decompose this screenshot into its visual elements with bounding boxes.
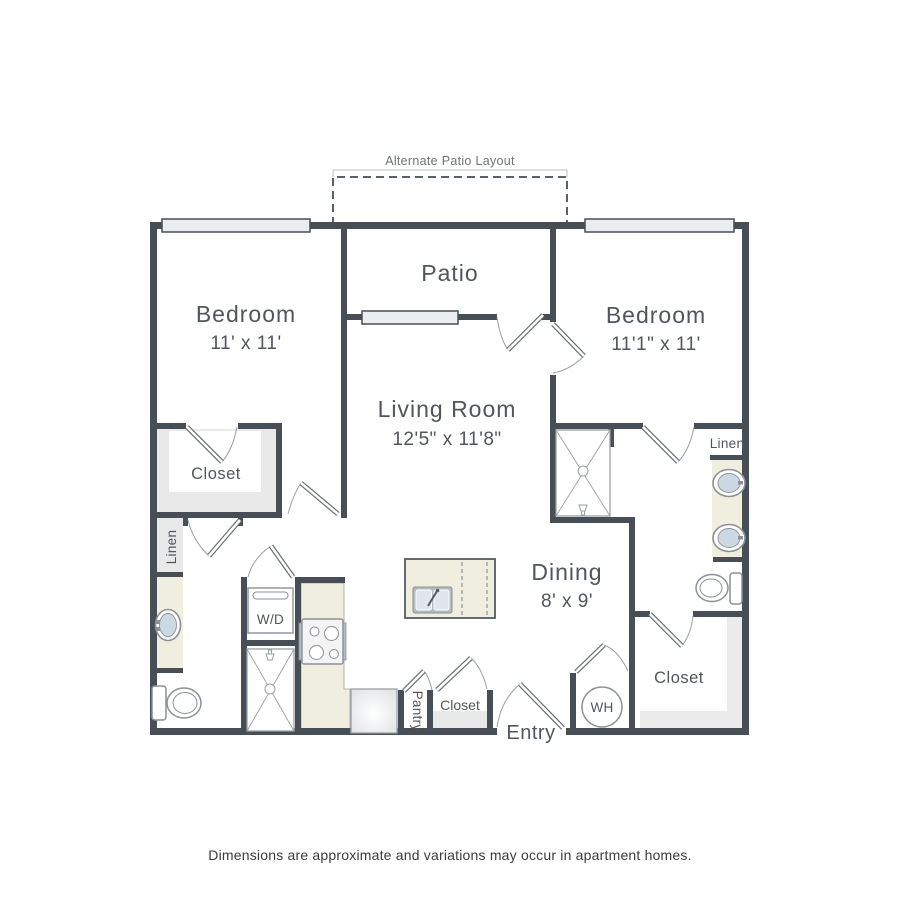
bedroom-right-dims: 11'1" x 11' [611,334,701,355]
living-room-dims: 12'5" x 11'8" [392,429,501,450]
washer-dryer: W/D [248,588,293,633]
washer-dryer-label: W/D [257,612,284,627]
floor-plan-page: Alternate Patio Layout [0,0,900,900]
closet-hall-label: Closet [440,697,480,713]
linen-right-label: Linen [710,436,745,451]
window-patio [362,311,458,324]
kitchen-island [405,559,495,618]
footer-disclaimer: Dimensions are approximate and variation… [208,847,691,863]
water-heater: WH [582,687,622,727]
bedroom-left-dims: 11' x 11' [210,333,281,354]
dining-dims: 8' x 9' [541,591,593,612]
toilet-right [696,573,742,604]
floor-plan-drawing: Alternate Patio Layout [0,0,900,900]
island-sink [413,587,452,613]
refrigerator [351,689,397,733]
window-bedroom-right [585,219,734,232]
linen-left-label: Linen [164,530,179,565]
window-bedroom-left [162,219,310,232]
shower-left [247,649,294,731]
dining-label: Dining [531,559,602,585]
closet-left-label: Closet [191,465,241,483]
water-heater-label: WH [590,700,613,715]
vanity-sink-left [156,610,181,641]
alternate-patio-label: Alternate Patio Layout [385,154,515,168]
living-room-label: Living Room [378,396,517,422]
bedroom-right-label: Bedroom [606,302,706,328]
shower-right [556,430,610,516]
stove [299,619,346,664]
bedroom-left-label: Bedroom [196,301,296,327]
toilet-left [152,686,201,720]
pantry-label: Pantry [410,691,425,732]
closet-right-label: Closet [654,669,704,687]
patio-label: Patio [421,260,478,286]
alternate-patio-annotation: Alternate Patio Layout [333,154,567,225]
entry-label: Entry [506,722,555,744]
